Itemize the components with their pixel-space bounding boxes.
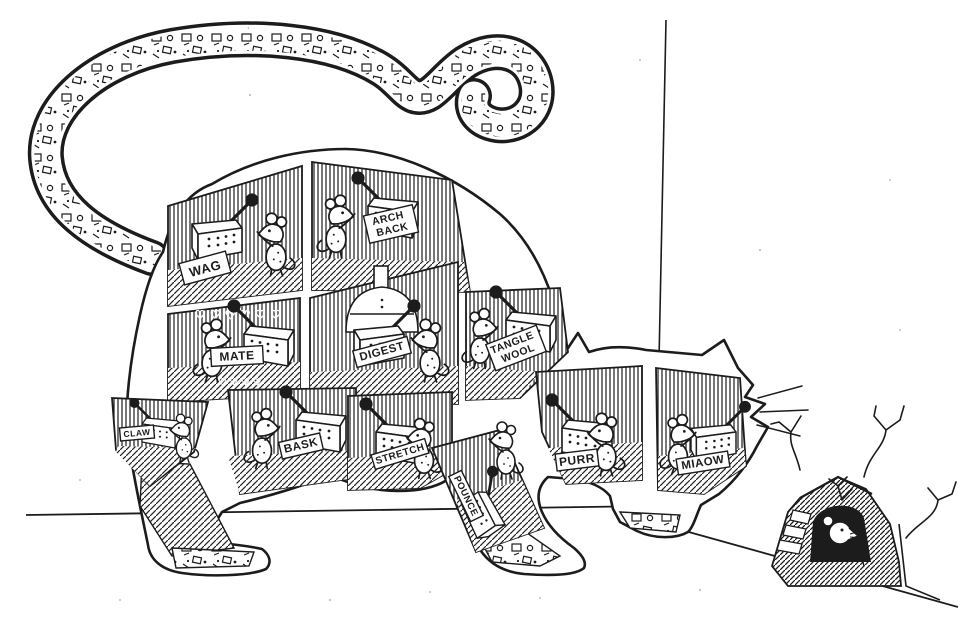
claw-label: CLAW <box>119 425 154 441</box>
svg-text:MATE: MATE <box>219 348 255 364</box>
mate-label: MATE <box>211 346 264 367</box>
wall-base-edge <box>899 524 940 600</box>
compartment-stretch: STRETCH <box>348 392 452 490</box>
illustration-canvas: WAG ARCH BACK ♡ ♡ ♡ ♡ ♡ ♡ MATE ♡ ♡ ♡ ♡ <box>0 0 958 618</box>
cartoon-cat-illustration: WAG ARCH BACK ♡ ♡ ♡ ♡ ♡ ♡ MATE ♡ ♡ ♡ ♡ <box>0 0 958 618</box>
hind-foot-machinery <box>172 548 254 568</box>
chin-paw-machinery <box>620 512 680 532</box>
compartment-wag: WAG <box>168 166 302 306</box>
compartment-mate: ♡ ♡ ♡ ♡ ♡ ♡ MATE ♡ ♡ ♡ ♡ <box>168 298 300 402</box>
compartment-bask: BASK <box>228 386 356 494</box>
hearts-decor: ♡ ♡ ♡ ♡ <box>218 377 261 387</box>
floor-line-left <box>26 506 654 515</box>
